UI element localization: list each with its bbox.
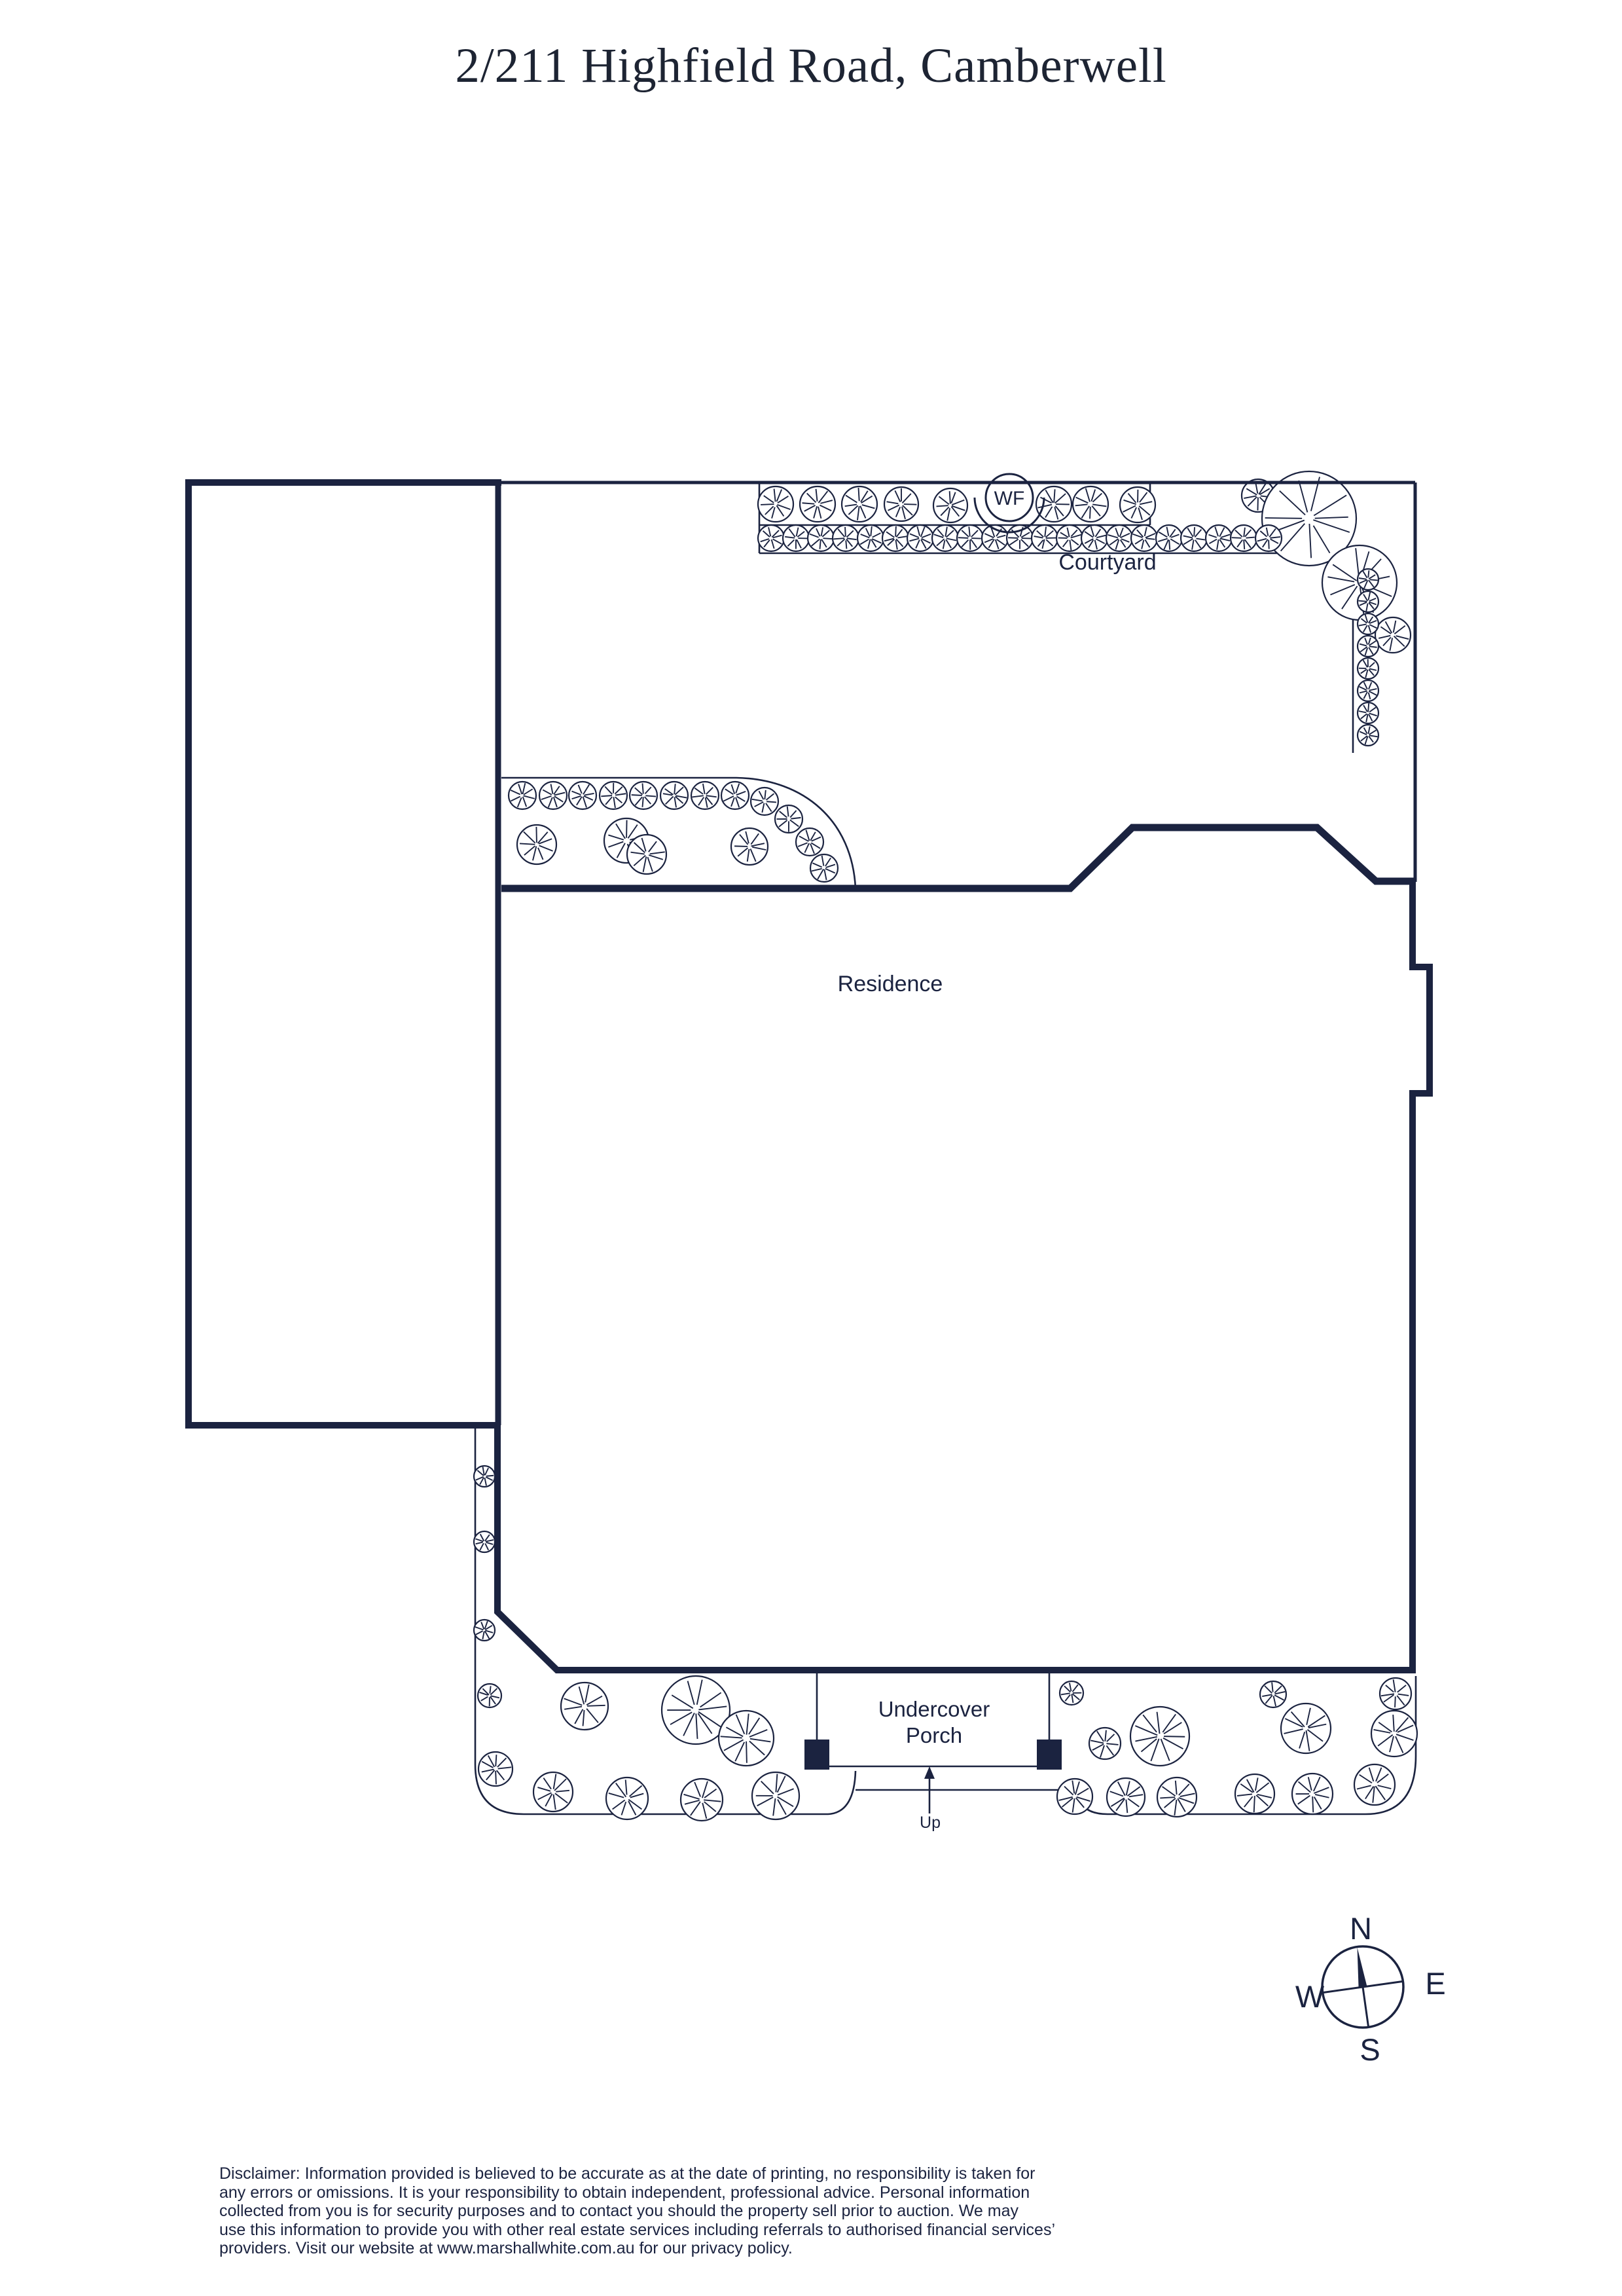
disclaimer: Disclaimer: Information provided is beli… bbox=[219, 2164, 1417, 2258]
tree-symbol bbox=[884, 487, 918, 521]
garden-bed-line bbox=[475, 1427, 856, 1814]
tree-symbol bbox=[569, 782, 596, 809]
courtyard-label: Courtyard bbox=[1058, 550, 1156, 575]
tree-symbol bbox=[808, 525, 834, 551]
shrub-symbol bbox=[474, 1466, 495, 1487]
tree-symbol bbox=[731, 828, 768, 865]
shrub-symbol bbox=[478, 1684, 501, 1707]
shrub-symbol bbox=[1358, 702, 1379, 723]
disclaimer-line: any errors or omissions. It is your resp… bbox=[219, 2183, 1417, 2202]
porch-pillar bbox=[1037, 1740, 1062, 1770]
tree-symbol bbox=[1106, 525, 1132, 551]
tree-symbol bbox=[833, 525, 859, 551]
tree-symbol bbox=[810, 854, 838, 882]
tree-symbol bbox=[1007, 525, 1033, 551]
tree-symbol bbox=[1206, 525, 1232, 551]
compass-north-label: N bbox=[1350, 1911, 1372, 1946]
tree-symbol bbox=[933, 488, 967, 522]
up-label: Up bbox=[920, 1813, 941, 1832]
tree-symbol bbox=[1375, 617, 1411, 653]
tree-symbol bbox=[1056, 525, 1083, 551]
tree-symbol bbox=[1073, 486, 1108, 522]
tree-symbol bbox=[539, 782, 567, 809]
tree-symbol bbox=[783, 525, 809, 551]
tree-symbol bbox=[842, 486, 877, 522]
tree-symbol bbox=[1181, 525, 1207, 551]
shrub-symbol bbox=[1358, 613, 1379, 634]
tree-symbol bbox=[752, 1772, 799, 1819]
shrub-symbol bbox=[1358, 658, 1379, 679]
disclaimer-line: collected from you is for security purpo… bbox=[219, 2202, 1417, 2221]
compass bbox=[1317, 1942, 1409, 2033]
tree-symbol bbox=[1235, 1774, 1274, 1813]
outer-wall bbox=[189, 483, 1430, 1670]
tree-symbol bbox=[1260, 1681, 1286, 1707]
shrub-symbol bbox=[1358, 636, 1379, 657]
compass-south-label: S bbox=[1360, 2032, 1380, 2067]
shrub-symbol bbox=[1358, 725, 1379, 746]
floorplan-svg: CourtyardResidenceUndercoverPorchUpWFNEW… bbox=[0, 0, 1622, 2296]
tree-symbol bbox=[1120, 487, 1155, 522]
tree-symbol bbox=[932, 525, 958, 551]
tree-symbol bbox=[681, 1779, 723, 1821]
tree-symbol bbox=[857, 525, 884, 551]
tree-symbol bbox=[751, 788, 778, 815]
tree-symbol bbox=[1107, 1778, 1145, 1816]
tree-symbol bbox=[509, 782, 536, 809]
walls bbox=[189, 483, 1430, 1670]
site-plan: CourtyardResidenceUndercoverPorchUpWFNEW… bbox=[0, 0, 1622, 2296]
porch-pillar bbox=[804, 1740, 829, 1770]
shrub-symbol bbox=[1358, 591, 1379, 612]
disclaimer-line: use this information to provide you with… bbox=[219, 2221, 1417, 2240]
tree-symbol bbox=[1157, 1777, 1197, 1817]
tree-symbol bbox=[627, 835, 666, 874]
tree-symbol bbox=[517, 825, 556, 864]
tree-symbol bbox=[1255, 525, 1282, 551]
tree-symbol bbox=[1156, 525, 1182, 551]
tree-symbol bbox=[1081, 525, 1108, 551]
tree-symbol bbox=[600, 782, 627, 809]
tree-symbol bbox=[758, 525, 784, 551]
tree-symbol bbox=[907, 525, 933, 551]
up-arrow-head bbox=[924, 1766, 935, 1779]
tree-symbol bbox=[1089, 1728, 1121, 1759]
tree-symbol bbox=[796, 828, 823, 856]
tree-symbol bbox=[660, 782, 688, 809]
tree-symbol bbox=[1036, 486, 1072, 522]
tree-symbol bbox=[1131, 525, 1157, 551]
tree-symbol bbox=[1281, 1704, 1331, 1753]
compass-east-label: E bbox=[1425, 1966, 1445, 2001]
tree-symbol bbox=[1231, 525, 1257, 551]
garden-lines bbox=[475, 483, 1416, 1814]
tree-symbol bbox=[1371, 1711, 1417, 1757]
porch-label: Undercover bbox=[878, 1697, 990, 1721]
tree-symbol bbox=[800, 486, 835, 522]
tree-symbol bbox=[758, 486, 793, 522]
plan-labels: CourtyardResidenceUndercoverPorchUpWFNEW… bbox=[838, 488, 1446, 2067]
tree-symbol bbox=[1057, 1779, 1092, 1814]
water-feature-label: WF bbox=[994, 488, 1025, 509]
shrub-symbol bbox=[474, 1620, 495, 1641]
tree-symbol bbox=[882, 525, 909, 551]
tree-symbol bbox=[478, 1752, 513, 1786]
tree-symbol bbox=[1032, 525, 1058, 551]
shrub-symbol bbox=[1358, 680, 1379, 701]
tree-symbol bbox=[957, 525, 983, 551]
shrub-symbol bbox=[1060, 1681, 1083, 1705]
compass-west-label: W bbox=[1295, 1979, 1325, 2014]
floorplan-page: 2/211 Highfield Road, Camberwell Courtya… bbox=[0, 0, 1622, 2296]
compass-needle bbox=[1353, 1947, 1367, 1988]
tree-symbol bbox=[1354, 1764, 1395, 1805]
garden-trees bbox=[474, 471, 1417, 1821]
tree-symbol bbox=[721, 782, 749, 809]
tree-symbol bbox=[691, 782, 719, 809]
compass-cross bbox=[1317, 1942, 1409, 2033]
tree-symbol bbox=[533, 1772, 573, 1812]
residence-label: Residence bbox=[838, 972, 943, 996]
porch-label: Porch bbox=[906, 1723, 962, 1747]
tree-symbol bbox=[1292, 1774, 1333, 1814]
tree-symbol bbox=[561, 1683, 608, 1730]
tree-symbol bbox=[1130, 1707, 1189, 1766]
tree-symbol bbox=[775, 805, 802, 833]
disclaimer-line: Disclaimer: Information provided is beli… bbox=[219, 2164, 1417, 2183]
tree-symbol bbox=[630, 782, 657, 809]
disclaimer-line: providers. Visit our website at www.mars… bbox=[219, 2239, 1417, 2258]
tree-symbol bbox=[1380, 1678, 1411, 1709]
tree-symbol bbox=[606, 1777, 648, 1819]
tree-symbol bbox=[719, 1711, 774, 1766]
shrub-symbol bbox=[1358, 569, 1379, 590]
shrub-symbol bbox=[474, 1531, 495, 1552]
